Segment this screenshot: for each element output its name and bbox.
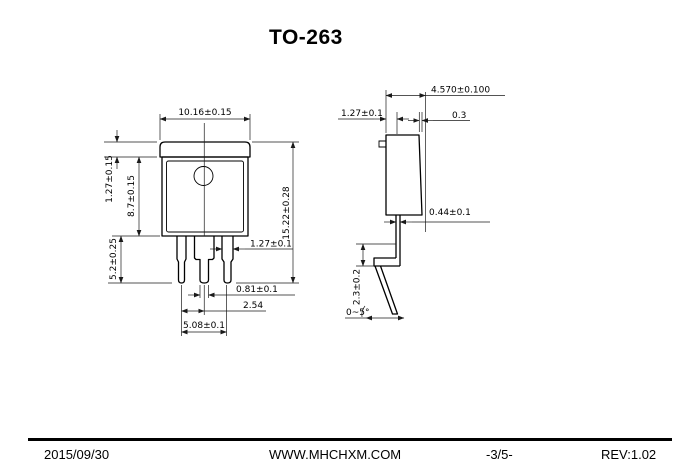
side-view: 4.570±0.100 1.27±0.1 0.3 0.44±0.1 2.3±0 — [338, 86, 505, 319]
footer-revision: REV:1.02 — [601, 447, 656, 462]
dim-width-label: 10.16±0.15 — [178, 108, 231, 118]
lead-center — [195, 236, 215, 283]
tab-outline — [160, 142, 250, 157]
dim-lead-width-label: 1.27±0.1 — [250, 240, 292, 250]
footer-page-number: -3/5- — [486, 447, 513, 462]
lead-tip — [375, 266, 398, 314]
dim-body-height-label: 8.7±0.15 — [127, 175, 137, 217]
dim-lead-length-label: 5.2±0.25 — [109, 238, 119, 280]
dim-lead-thickness-label: 0.44±0.1 — [429, 208, 471, 218]
dim-step-label: 0.3 — [452, 111, 466, 121]
lead-right — [222, 236, 233, 283]
dim-lead-angle-label: 0~5° — [346, 308, 370, 318]
lead-foot — [374, 258, 400, 266]
dim-overall-height-label: 15.22±0.28 — [282, 186, 292, 240]
tab-notch — [379, 141, 386, 147]
dim-lead-tip-width-label: 0.81±0.1 — [236, 285, 278, 295]
footer-date: 2015/09/30 — [44, 447, 109, 462]
package-body-outline — [162, 157, 248, 236]
package-outline-drawing: 10.16±0.15 1.27±0.15 8.7±0.15 5.2±0.25 1… — [0, 0, 699, 476]
datasheet-page: TO-263 10.16±0.15 — [0, 0, 699, 476]
dim-lead-span-label: 5.08±0.1 — [183, 321, 225, 331]
dim-tab-thickness-label: 1.27±0.1 — [341, 109, 383, 119]
dim-thickness-label: 4.570±0.100 — [431, 86, 490, 96]
dim-lead-pitch-label: 2.54 — [243, 301, 263, 311]
dim-tab-height-label: 1.27±0.15 — [105, 155, 115, 203]
front-view: 10.16±0.15 1.27±0.15 8.7±0.15 5.2±0.25 1… — [104, 108, 299, 336]
footer-website: WWW.MHCHXM.COM — [269, 447, 401, 462]
side-body-outline — [386, 135, 422, 215]
body-inner-line — [167, 161, 244, 232]
mounting-hole — [194, 167, 213, 186]
dim-foot-height-label: 2.3±0.2 — [353, 269, 363, 305]
lead-left — [177, 236, 186, 283]
footer-divider — [28, 438, 672, 441]
